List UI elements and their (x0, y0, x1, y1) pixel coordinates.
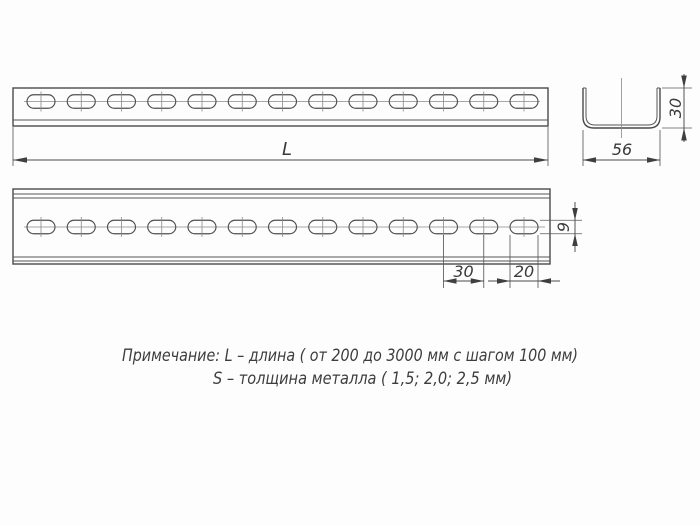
arrow-right-icon (534, 157, 548, 163)
dimension-length: L (13, 127, 548, 166)
note: Примечание: L – длина ( от 200 до 3000 м… (122, 346, 578, 389)
arrow-right-icon (647, 157, 660, 163)
arrow-left-inward-icon (538, 278, 551, 284)
dimension-height-label: 30 (666, 98, 685, 118)
note-line-2: S – толщина металла ( 1,5; 2,0; 2,5 мм) (213, 369, 512, 389)
dimension-height: 30 (662, 74, 692, 142)
arrow-left-icon (13, 157, 27, 163)
dimension-slot-width-label: 9 (554, 222, 573, 232)
dimension-slot-spacing-label: 30 (453, 262, 473, 281)
arrow-up-icon (681, 128, 687, 141)
end-view (583, 78, 660, 138)
note-line-1: Примечание: L – длина ( от 200 до 3000 м… (122, 346, 578, 366)
arrow-up-icon (572, 234, 578, 246)
arrow-left-icon (583, 157, 596, 163)
technical-drawing-perforated-channel: L 30 56 (0, 0, 700, 525)
plan-view (13, 189, 550, 264)
dimension-slot-width: 9 (540, 202, 582, 252)
side-view (13, 88, 548, 126)
dimension-width-label: 56 (612, 140, 632, 159)
arrow-down-icon (681, 76, 687, 89)
dimension-length-label: L (282, 139, 292, 160)
drawing-svg: L 30 56 (0, 0, 700, 525)
dimension-slot-length-label: 20 (514, 262, 534, 281)
arrow-right-inward-icon (497, 278, 510, 284)
arrow-down-icon (572, 208, 578, 220)
